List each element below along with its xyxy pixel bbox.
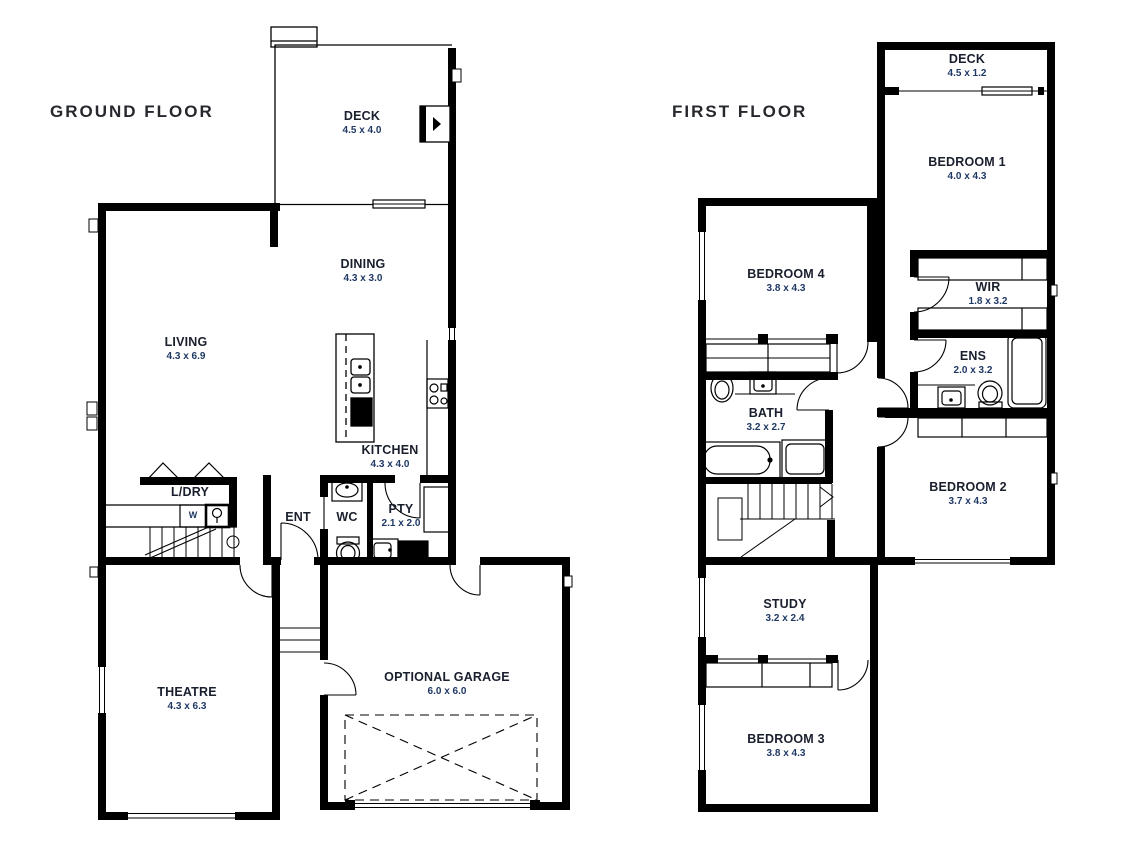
room-label-theatre: THEATRE 4.3 x 6.3 [157,686,217,712]
kitchen-island [336,334,374,442]
entry-door-arc [281,523,318,560]
room-label-entry: ENT [285,511,311,525]
first-floor-title: FIRST FLOOR [672,102,807,122]
room-label-deck-first: DECK 4.5 x 1.2 [948,53,987,79]
ground-floor-title: GROUND FLOOR [50,102,214,122]
ens-door-arc [914,340,946,372]
bedroom4-robe [706,339,830,372]
room-label-deck-ground: DECK 4.5 x 4.0 [343,110,382,136]
hall-door-lower-arc [878,417,908,447]
stair-newel-circle [227,536,239,548]
room-label-bedroom4: BEDROOM 4 3.8 x 4.3 [747,268,825,294]
garage-porch-door-arc [324,663,356,695]
room-label-kitchen: KITCHEN 4.3 x 4.0 [362,444,419,470]
room-label-bedroom1: BEDROOM 1 4.0 x 4.3 [928,156,1006,182]
garage-door-line [345,804,540,808]
theatre-door-arc [240,565,272,597]
wc-toilet-icon [337,537,359,544]
dining-sliding-door [373,200,425,208]
bbq-icon [420,106,450,142]
room-label-garage: OPTIONAL GARAGE 6.0 x 6.0 [384,671,510,697]
floor-plan-canvas: GROUND FLOOR FIRST FLOOR DECK 4.5 x 4.0 … [0,0,1143,862]
room-label-bedroom2: BEDROOM 2 3.7 x 4.3 [929,481,1007,507]
hall-door-upper-arc [878,378,908,408]
room-label-dining: DINING 4.3 x 3.0 [341,258,386,284]
first-deck-boundary [885,87,1047,95]
bedroom4-door-arc [837,342,868,373]
washer-label: W [189,510,198,520]
room-label-ens: ENS 2.0 x 3.2 [954,350,993,376]
kitchen-bench [427,340,448,477]
room-label-bedroom3: BEDROOM 3 3.8 x 4.3 [747,733,825,759]
deck-planter-box [271,27,317,47]
room-label-bath: BATH 3.2 x 2.7 [747,407,786,433]
floor-plan-drawing [0,0,1143,862]
room-label-wir: WIR 1.8 x 3.2 [969,281,1008,307]
wir-door-arc [914,277,949,312]
ground-stairs [98,505,239,558]
stair-direction-arrow [820,487,833,507]
ground-wall-markers [87,69,572,587]
room-label-pantry: PTY 2.1 x 2.0 [382,503,421,529]
room-label-living: LIVING 4.3 x 6.9 [165,336,208,362]
bedroom3-robe [706,659,838,687]
pantry-bench [398,541,428,562]
dishwasher-icon [351,398,372,426]
fridge-space [424,487,451,532]
porch-steps [280,628,320,652]
room-label-wc: WC [336,511,357,525]
ens-shower-icon [1008,334,1046,408]
bedroom2-robe [918,418,1047,437]
bedroom3-door-arc [838,660,868,690]
bath-shower-icon [782,440,828,478]
garage-car-space [345,715,537,800]
room-label-laundry: L/DRY [171,486,209,500]
room-label-study: STUDY 3.2 x 2.4 [763,598,806,624]
garage-internal-door-arc [450,565,480,595]
bath-door-arc [797,378,829,410]
first-stairs [718,484,835,557]
